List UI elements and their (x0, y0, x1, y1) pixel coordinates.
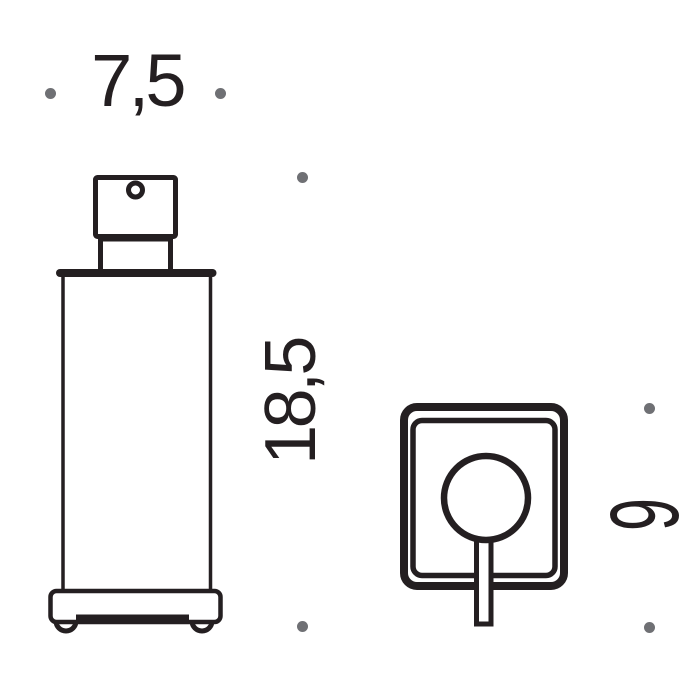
dispenser-front-view (51, 178, 221, 632)
nozzle-hole-icon (129, 183, 143, 197)
pump-circle (444, 456, 528, 540)
depth-dimension-label: 9 (596, 484, 694, 548)
depth-marker-bottom-dot (644, 622, 655, 633)
technical-drawing-canvas: 7,5 18,5 9 (0, 0, 700, 700)
depth-marker-top-dot (644, 403, 655, 414)
height-dimension-label: 18,5 (255, 312, 329, 492)
width-dimension-label: 7,5 (84, 44, 190, 118)
width-marker-right-dot (215, 88, 226, 99)
height-marker-top-dot (297, 172, 308, 183)
width-marker-left-dot (45, 88, 56, 99)
height-marker-bottom-dot (297, 621, 308, 632)
pump-neck (101, 239, 171, 272)
dispenser-top-view (404, 407, 564, 624)
